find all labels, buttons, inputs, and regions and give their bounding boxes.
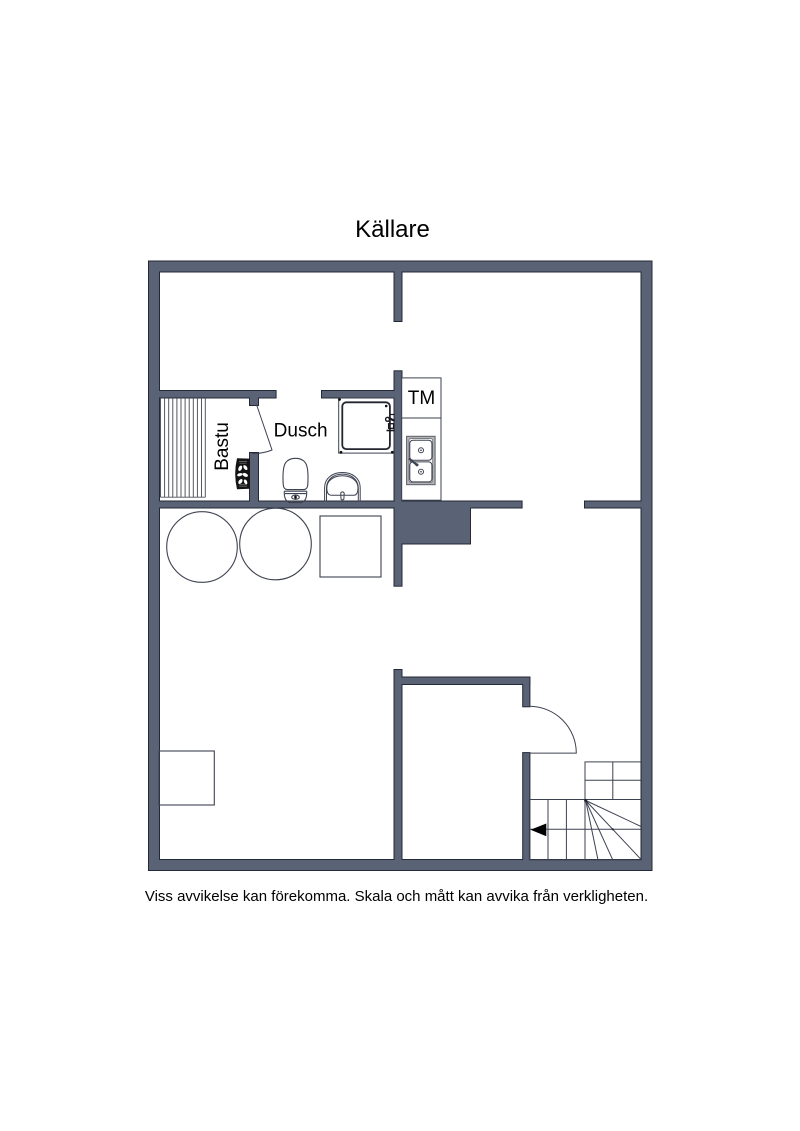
svg-text:Viss avvikelse kan förekomma.: Viss avvikelse kan förekomma. Skala och …	[145, 888, 648, 905]
svg-text:TM: TM	[408, 388, 435, 409]
svg-text:Bastu: Bastu	[212, 422, 233, 471]
svg-text:Dusch: Dusch	[274, 420, 328, 441]
svg-text:Källare: Källare	[355, 216, 430, 243]
